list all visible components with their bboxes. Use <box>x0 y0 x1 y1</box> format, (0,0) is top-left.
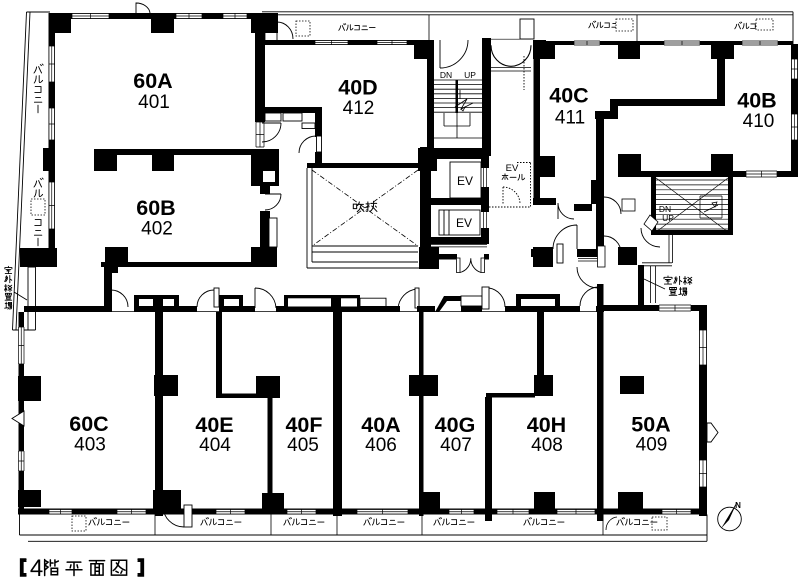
svg-text:405: 405 <box>287 435 319 456</box>
svg-text:403: 403 <box>74 435 106 456</box>
svg-text:EV: EV <box>457 174 473 188</box>
svg-text:40C: 40C <box>549 84 588 108</box>
svg-text:404: 404 <box>199 435 231 456</box>
svg-text:40A: 40A <box>361 413 400 437</box>
svg-text:40F: 40F <box>285 413 322 437</box>
svg-text:EV: EV <box>506 163 519 174</box>
svg-text:407: 407 <box>440 435 472 456</box>
svg-text:40H: 40H <box>527 413 566 437</box>
svg-text:60B: 60B <box>136 196 175 220</box>
svg-text:N: N <box>735 501 741 510</box>
svg-text:60A: 60A <box>133 69 172 93</box>
svg-text:401: 401 <box>138 92 170 113</box>
svg-text:40B: 40B <box>737 89 776 113</box>
svg-text:408: 408 <box>531 435 563 456</box>
svg-text:DN: DN <box>440 70 452 80</box>
svg-text:UP: UP <box>464 70 476 80</box>
svg-text:410: 410 <box>743 111 775 132</box>
svg-text:402: 402 <box>141 219 173 240</box>
svg-text:50A: 50A <box>631 413 670 437</box>
svg-text:40D: 40D <box>338 76 377 100</box>
svg-text:406: 406 <box>365 435 397 456</box>
svg-text:EV: EV <box>456 216 472 230</box>
svg-text:4: 4 <box>30 555 43 582</box>
svg-text:411: 411 <box>555 108 585 129</box>
svg-text:60C: 60C <box>69 412 108 436</box>
svg-text:UP: UP <box>662 213 674 223</box>
svg-text:40E: 40E <box>195 413 233 437</box>
svg-text:40G: 40G <box>435 413 476 437</box>
svg-text:409: 409 <box>636 435 668 456</box>
svg-text:412: 412 <box>343 98 375 119</box>
